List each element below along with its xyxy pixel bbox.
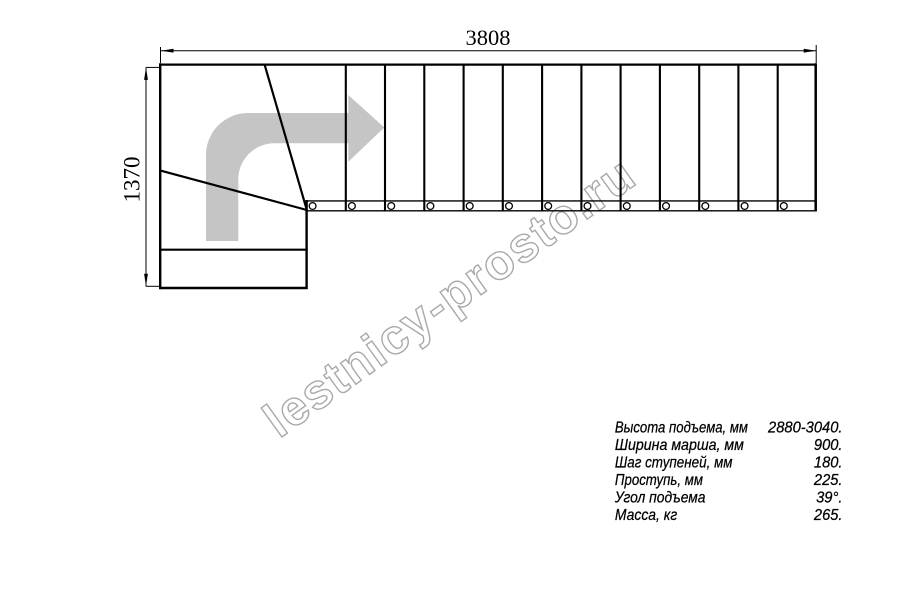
svg-text:1370: 1370 — [120, 157, 145, 203]
svg-text:2880-3040.: 2880-3040. — [767, 420, 842, 437]
svg-text:Высота подъема, мм: Высота подъема, мм — [615, 420, 748, 437]
svg-text:180.: 180. — [814, 455, 843, 472]
svg-text:lestnicy-prosto.ru: lestnicy-prosto.ru — [254, 146, 646, 448]
svg-text:Угол подъема: Угол подъема — [614, 490, 706, 507]
svg-text:Ширина марша, мм: Ширина марша, мм — [615, 437, 744, 454]
svg-text:225.: 225. — [813, 472, 843, 489]
svg-text:Проступь, мм: Проступь, мм — [615, 472, 703, 489]
svg-text:900.: 900. — [814, 437, 843, 454]
svg-text:Масса, кг: Масса, кг — [615, 507, 677, 524]
svg-text:265.: 265. — [813, 507, 843, 524]
svg-text:Шаг ступеней, мм: Шаг ступеней, мм — [615, 455, 733, 472]
svg-text:39°.: 39°. — [816, 490, 842, 507]
svg-text:3808: 3808 — [466, 25, 511, 50]
